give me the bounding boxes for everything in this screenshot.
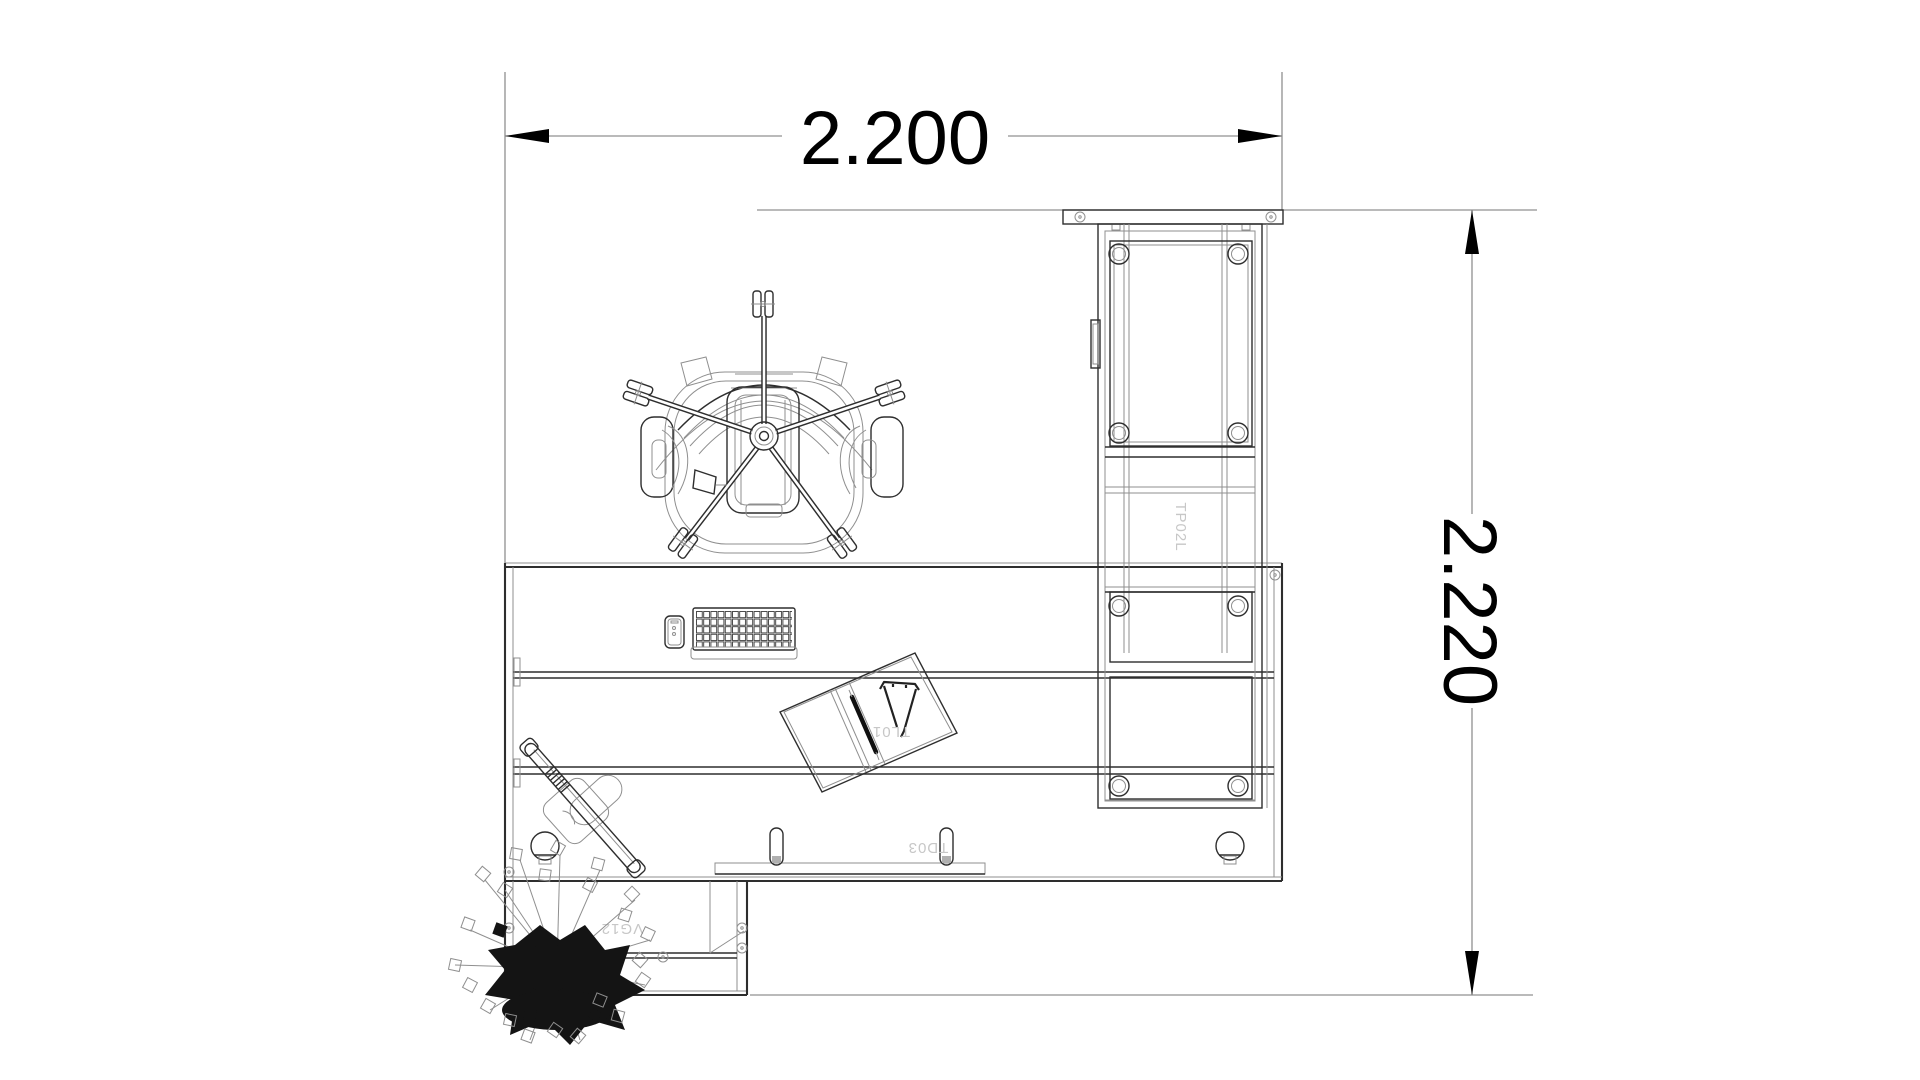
document-folder: TL01 <box>780 653 957 792</box>
cabinet-code-label: TP02L <box>1172 502 1189 551</box>
arrow-left-icon <box>505 129 549 143</box>
floor-plan-canvas: 2.200 2.220 <box>0 0 1920 1080</box>
cable-grommet-right <box>1216 832 1244 864</box>
cabinet: TP02L <box>1063 210 1283 808</box>
cabinet-panel-top <box>1109 241 1252 446</box>
chair-hub <box>750 422 778 450</box>
desk-surface: TD03 <box>504 563 1282 881</box>
cabinet-panel-middle <box>1109 592 1252 662</box>
chair-armrest-left <box>641 417 688 497</box>
dimension-width-value: 2.200 <box>800 96 990 181</box>
dimension-width: 2.200 <box>505 72 1282 563</box>
keyboard <box>691 608 797 659</box>
return-code-label: VG12 <box>601 920 643 937</box>
cam-connector <box>1270 570 1280 580</box>
arrow-right-icon <box>1238 129 1282 143</box>
dimension-depth-value: 2.220 <box>1427 516 1512 706</box>
plant <box>448 840 655 1045</box>
caster <box>751 291 775 317</box>
cabinet-panel-bottom <box>1109 677 1252 799</box>
caster <box>874 377 906 408</box>
cabinet-top-band <box>1063 210 1283 224</box>
desk-code-label: TD03 <box>908 839 949 856</box>
office-chair <box>622 291 906 561</box>
folder-code-label: TL01 <box>872 723 910 740</box>
chair-base <box>622 291 906 561</box>
keyboard-wrist-rest <box>691 647 797 659</box>
lamp-base <box>539 774 612 847</box>
cable-grommet-left <box>531 832 559 864</box>
edge-bracket <box>514 759 520 787</box>
caster <box>622 377 654 408</box>
backrest-wing-right <box>816 357 847 386</box>
backrest-wing-left <box>681 357 712 386</box>
mobile-phone <box>665 616 684 648</box>
rail-pin <box>770 828 783 865</box>
cad-drawing: 2.200 2.220 <box>0 0 1920 1080</box>
arrow-up-icon <box>1465 210 1479 254</box>
arrow-down-icon <box>1465 951 1479 995</box>
